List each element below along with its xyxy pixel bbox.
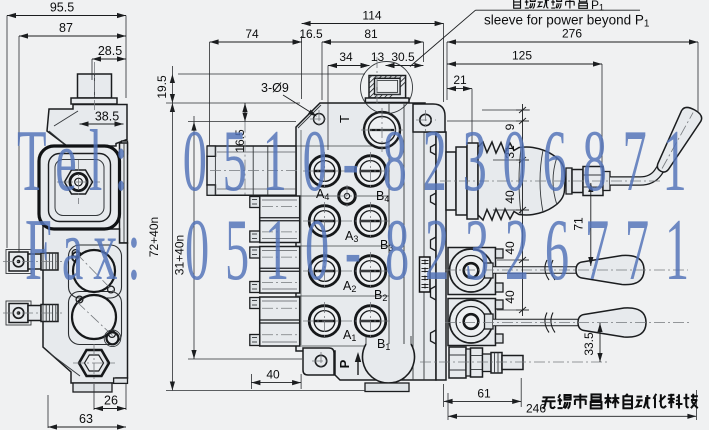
svg-text:82306871: 82306871 <box>383 113 703 210</box>
svg-text:Tel:: Tel: <box>17 113 140 210</box>
svg-text:33.5: 33.5 <box>582 332 596 356</box>
svg-text:26: 26 <box>104 394 118 408</box>
svg-text:0510-: 0510- <box>185 202 377 299</box>
svg-text:74: 74 <box>245 27 259 41</box>
svg-text:61: 61 <box>477 387 491 401</box>
svg-text:3-Ø9: 3-Ø9 <box>261 81 289 95</box>
svg-text:28.5: 28.5 <box>98 44 122 58</box>
svg-text:34: 34 <box>339 50 353 64</box>
svg-text:81: 81 <box>364 27 378 41</box>
svg-text:0510-: 0510- <box>183 113 375 210</box>
svg-text:13: 13 <box>371 50 385 64</box>
svg-text:19.5: 19.5 <box>155 75 169 99</box>
svg-text:95.5: 95.5 <box>50 1 74 15</box>
svg-text:114: 114 <box>362 9 381 23</box>
svg-text:276: 276 <box>562 27 582 41</box>
svg-text:82326771: 82326771 <box>385 202 705 299</box>
svg-text:63: 63 <box>79 412 93 426</box>
svg-text:40: 40 <box>266 368 280 382</box>
svg-text:16.5: 16.5 <box>299 27 323 41</box>
svg-text:30.5: 30.5 <box>391 50 415 64</box>
svg-text:125: 125 <box>512 49 532 63</box>
svg-text:87: 87 <box>59 21 73 35</box>
svg-text:21: 21 <box>453 73 467 87</box>
svg-text:P: P <box>337 359 352 368</box>
svg-text:P1: P1 <box>591 0 604 13</box>
svg-text:Fax:: Fax: <box>25 202 151 299</box>
svg-text:sleeve for power beyond P1: sleeve for power beyond P1 <box>484 13 650 30</box>
